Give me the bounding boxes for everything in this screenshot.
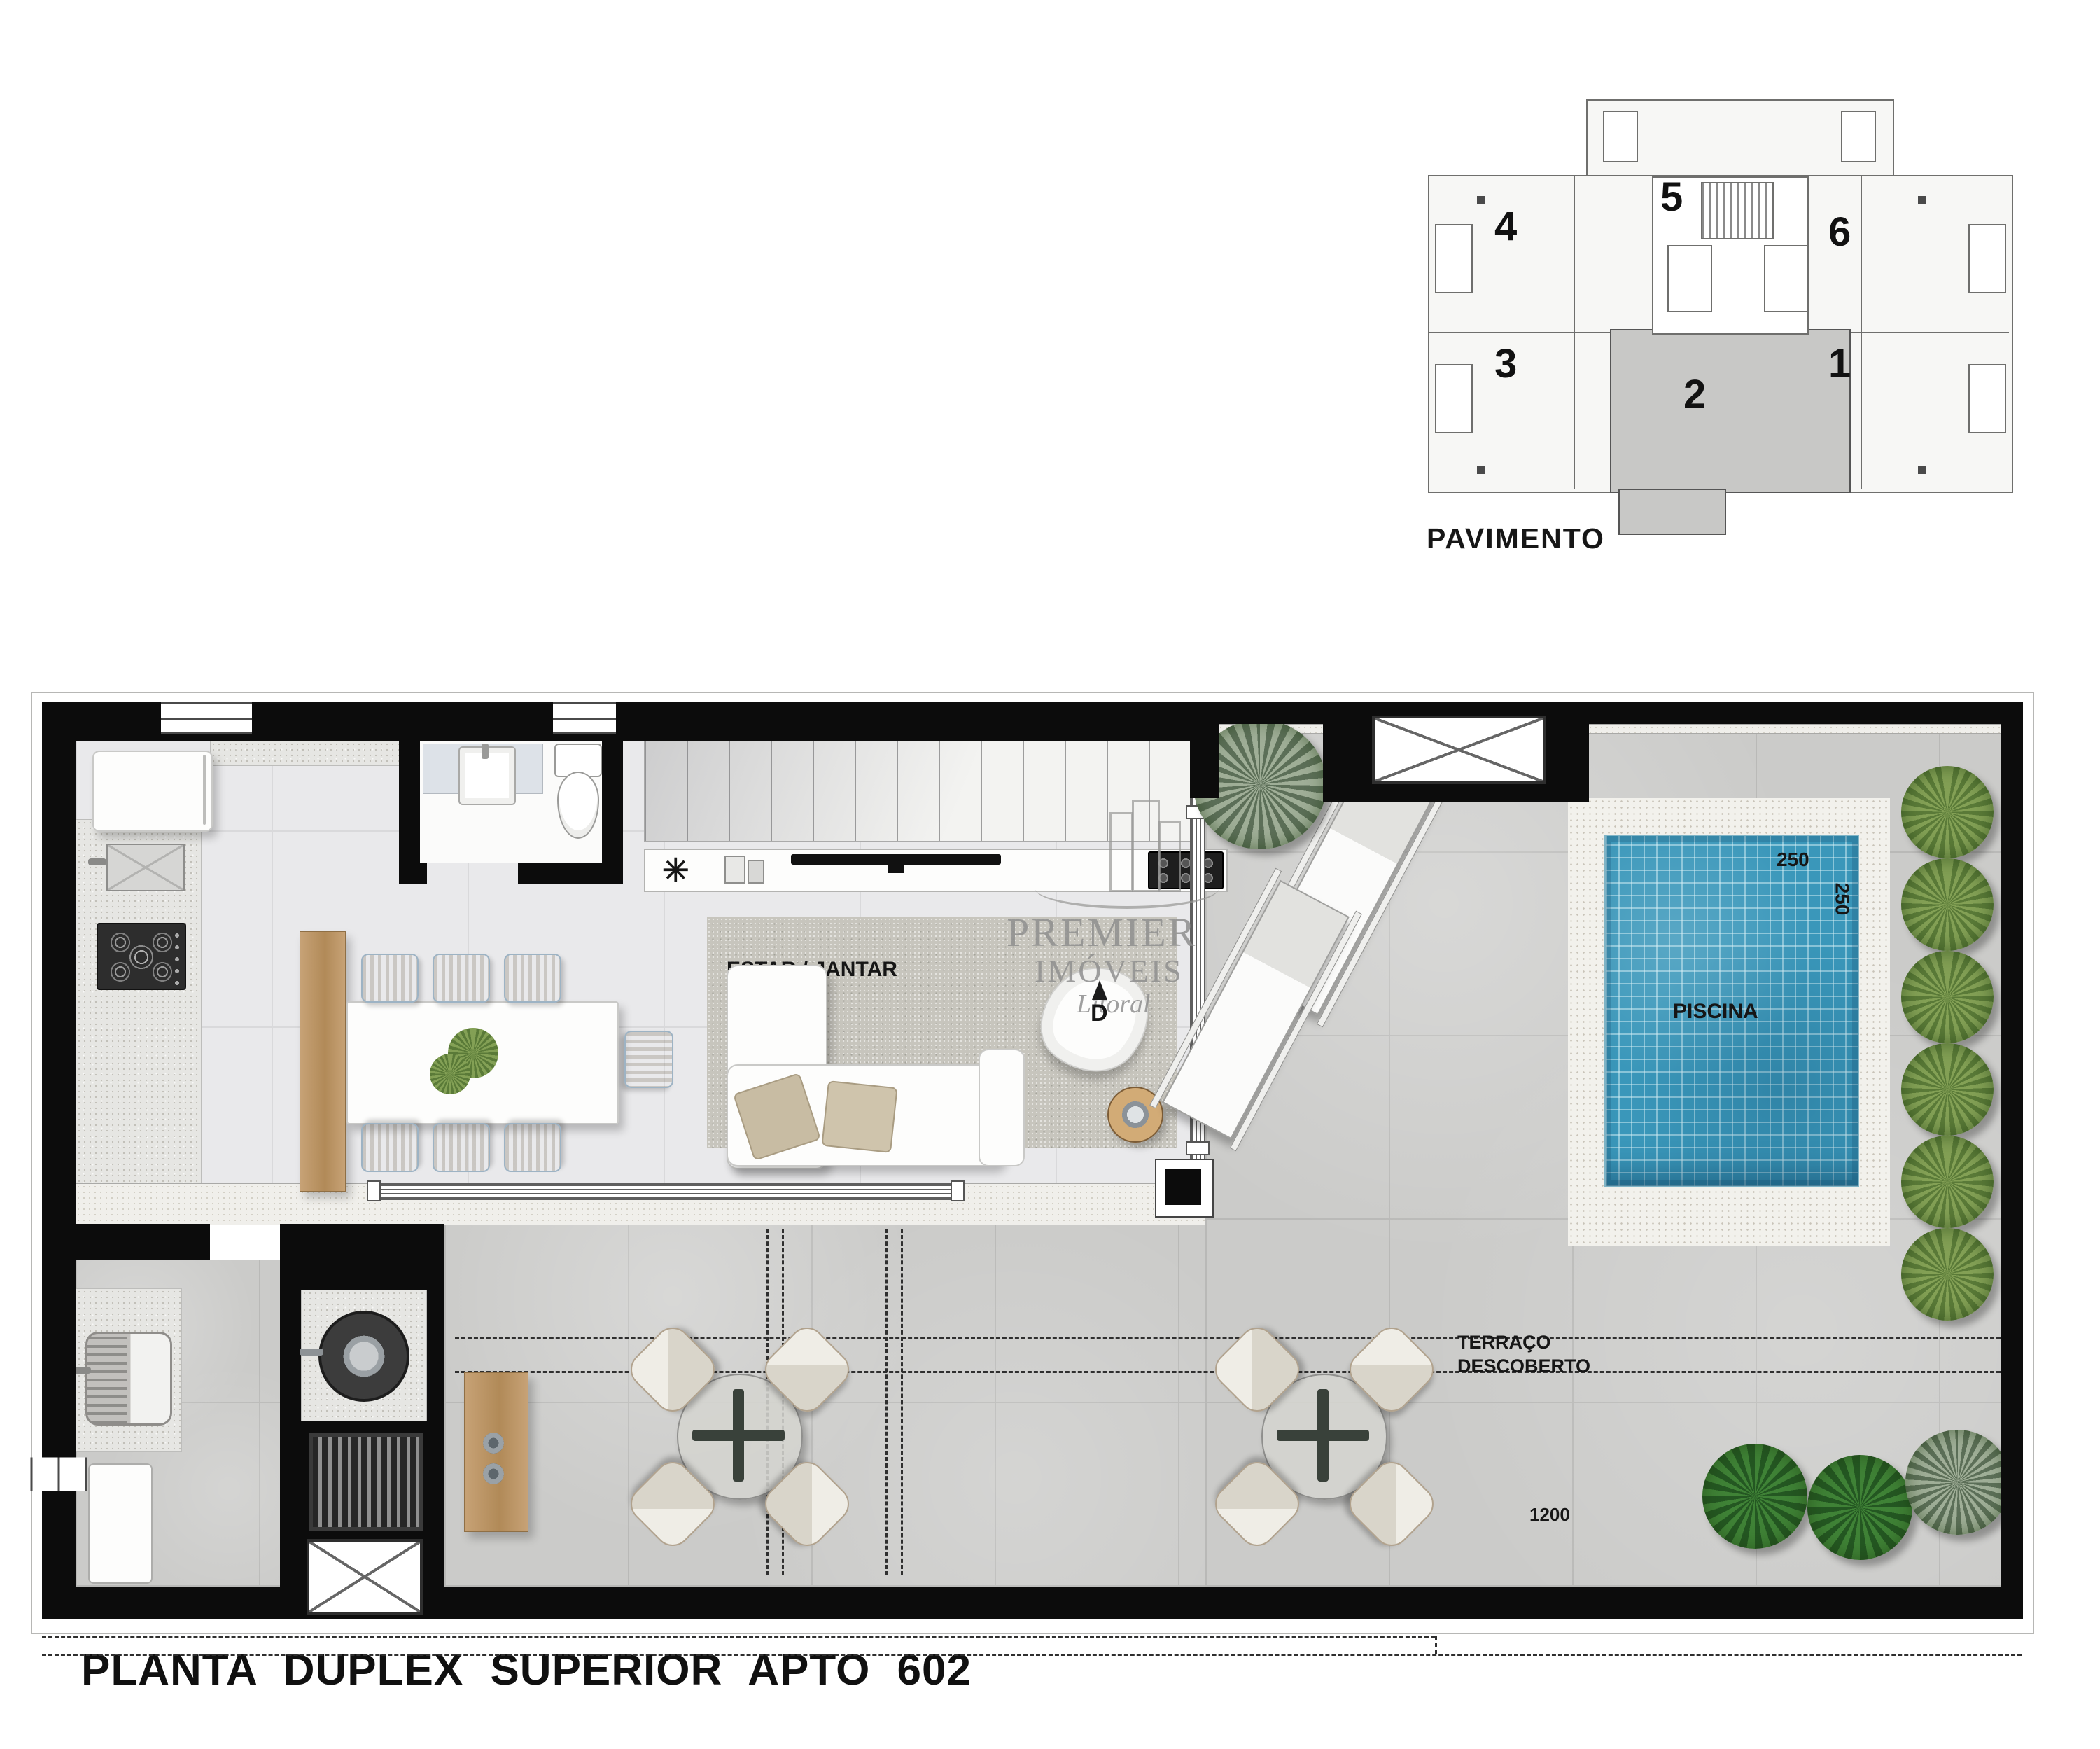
pergola-dash-line <box>901 1229 903 1575</box>
key-plan-unit-2: 2 <box>1683 371 1706 418</box>
terrace-parapet-ledge <box>1190 724 2001 734</box>
dining-chair <box>433 1123 490 1172</box>
decor-frame-icon <box>748 860 764 884</box>
service-window <box>31 1458 87 1491</box>
door-handle <box>1186 1141 1210 1155</box>
skylight-opening <box>1372 716 1546 784</box>
key-plan-window <box>1968 364 2006 433</box>
star-decor-icon: ✳ <box>662 851 689 889</box>
cooktop <box>97 923 186 990</box>
key-plan-unit-4: 4 <box>1494 203 1517 250</box>
key-plan-column-dot <box>1477 466 1485 474</box>
lavabo-wall-bottom-left <box>399 863 427 884</box>
tv-stand <box>888 865 904 873</box>
key-plan-elevator-left <box>1667 245 1712 312</box>
roof-projection-dash <box>1435 1636 1437 1654</box>
terrace-table-set <box>1218 1330 1428 1540</box>
key-plan-div-right <box>1861 176 1862 489</box>
key-plan-unit2-tab <box>1618 489 1726 535</box>
dim-pool-depth: 250 <box>1830 883 1853 916</box>
sofa-cushion <box>821 1080 897 1153</box>
dining-chair <box>504 1123 561 1172</box>
hedge-bush-icon <box>1901 1228 1994 1321</box>
key-plan-unit2-area <box>1610 329 1851 493</box>
tv-icon <box>791 854 1001 865</box>
dining-chair <box>504 954 561 1003</box>
watermark-line1: PREMIER <box>1007 909 1197 956</box>
terrace-table-set <box>633 1330 843 1540</box>
stairs-direction-arrow-icon <box>1092 980 1107 1000</box>
table-cross-icon <box>733 1389 744 1482</box>
bbq-grill-icon <box>318 1311 409 1402</box>
leafy-plant-icon <box>1807 1455 1912 1560</box>
key-plan-column-dot <box>1918 196 1926 204</box>
table-cross-icon <box>1317 1389 1329 1482</box>
washing-machine <box>88 1463 153 1584</box>
lavabo-window <box>553 702 616 734</box>
elevator-shaft <box>307 1539 423 1615</box>
key-plan-column-dot <box>1477 196 1485 204</box>
fridge-door-line <box>203 755 206 825</box>
leafy-plant-icon <box>1702 1444 1807 1549</box>
key-plan-window <box>1435 224 1473 293</box>
hedge-bush-icon <box>1901 1136 1994 1228</box>
hedge-bush-icon <box>1901 1043 1994 1136</box>
door-knob-icon <box>483 1463 504 1484</box>
key-plan-window <box>1603 111 1638 162</box>
door-handle <box>367 1180 381 1201</box>
laundry-tank-icon <box>85 1332 172 1426</box>
pergola-dash-line <box>885 1229 888 1575</box>
wall-right <box>2001 702 2023 1619</box>
page-title: PLANTA DUPLEX SUPERIOR APTO 602 <box>81 1645 972 1695</box>
hedge-bush-icon <box>1901 951 1994 1043</box>
lavabo-faucet-icon <box>482 744 489 759</box>
key-plan-column-dot <box>1918 466 1926 474</box>
roof-projection-dash <box>42 1636 1435 1638</box>
key-plan-elevator-right <box>1764 245 1809 312</box>
hedge-bush-icon <box>1901 766 1994 858</box>
key-plan-unit-1: 1 <box>1828 340 1851 387</box>
kitchen-window <box>161 702 252 734</box>
kitchen-sink <box>106 844 185 891</box>
key-plan: 4 5 6 3 1 2 <box>1393 91 2044 567</box>
terrace-label-line1: TERRAÇO <box>1457 1332 1551 1353</box>
kitchen-faucet-icon <box>88 858 106 865</box>
watermark-arc <box>1035 867 1219 909</box>
key-plan-window <box>1968 224 2006 293</box>
floor-plan-page: 4 5 6 3 1 2 PAVIMENTO <box>0 0 2100 1749</box>
key-plan-window <box>1841 111 1876 162</box>
dim-pool-width: 250 <box>1777 849 1809 871</box>
terrace-label-line2: DESCOBERTO <box>1457 1356 1590 1377</box>
door-handle <box>951 1180 965 1201</box>
wall-right-interior-stub <box>1190 702 1219 798</box>
decor-frame-icon <box>724 856 745 884</box>
key-plan-unit-6: 6 <box>1828 209 1851 256</box>
dim-terrace-width: 1200 <box>1529 1504 1570 1526</box>
dining-chair <box>433 954 490 1003</box>
dining-chair <box>361 1123 419 1172</box>
table-plant-icon <box>430 1054 470 1094</box>
sofa-arm-right <box>979 1049 1025 1166</box>
kitchen-top-counter <box>210 741 400 766</box>
door-knob-icon <box>483 1433 504 1454</box>
wall-top-terrace <box>1190 702 2023 724</box>
stairs-direction-marker: D <box>1091 1000 1108 1027</box>
key-plan-unit-3: 3 <box>1494 340 1517 387</box>
watermark-script: Litoral <box>1077 989 1151 1019</box>
grill-grate-icon <box>305 1430 427 1535</box>
hedge-bush-icon <box>1901 858 1994 951</box>
palm-plant-icon <box>1905 1430 2010 1535</box>
sliding-door-lower-terrace <box>378 1183 952 1200</box>
bbq-grill-handle <box>300 1349 323 1356</box>
key-plan-stair-hatch <box>1701 182 1774 239</box>
fridge <box>92 751 213 832</box>
watermark-line2: IMÓVEIS <box>1035 952 1184 989</box>
wall-service-top-right <box>280 1224 444 1260</box>
key-plan-unit-5: 5 <box>1660 174 1683 221</box>
lavabo-wall-bottom-right <box>518 863 623 884</box>
key-plan-div-left <box>1574 176 1575 489</box>
key-plan-window <box>1435 364 1473 433</box>
dining-chair <box>624 1031 673 1088</box>
wall-service-top-left <box>76 1224 210 1260</box>
pool-label: PISCINA <box>1673 1000 1758 1024</box>
kitchen-island <box>300 931 346 1192</box>
corner-pier <box>1165 1169 1201 1205</box>
roof-projection-dash <box>42 1654 2022 1656</box>
dining-chair <box>361 954 419 1003</box>
